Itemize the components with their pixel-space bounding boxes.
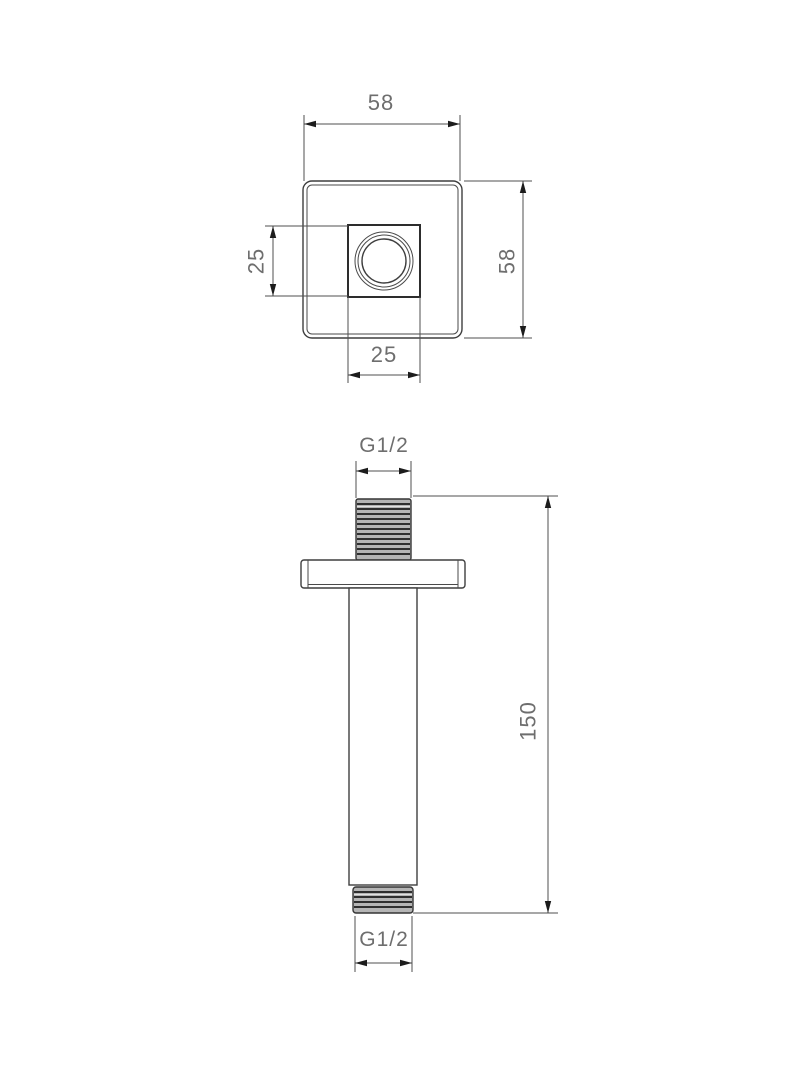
front-view: G1/2 [301,434,558,972]
thread-label-top: G1/2 [359,434,409,457]
flange-body [301,560,465,588]
dim-plate-width: 58 [304,90,460,181]
dim-plate-height: 58 [464,181,532,338]
thread-hole-minor-circle [362,239,406,283]
plate-inner-edge [307,185,458,334]
dim-thread-top: G1/2 [356,434,411,498]
arm-tube [349,588,417,885]
dim-label-arm-length: 150 [516,701,541,741]
dim-thread-bottom: G1/2 [355,916,412,972]
arrowhead-right [399,468,411,474]
dim-label-plate-height: 58 [495,248,520,274]
boss-and-thread-hole [348,225,420,297]
ceiling-plate-outline [303,181,462,338]
arrowhead-up [270,226,276,238]
arrowhead-right [400,960,412,966]
top-view: 58 58 [244,90,532,383]
arrowhead-down [520,326,526,338]
dim-boss-width: 25 [348,297,420,383]
dim-arm-length: 150 [413,496,558,913]
arrowhead-down [270,284,276,296]
boss-square [348,225,420,297]
arrowhead-left [356,468,368,474]
arrowhead-left [355,960,367,966]
thread-label-bottom: G1/2 [359,928,409,951]
ceiling-flange [301,560,465,588]
arrowhead-up [545,496,551,508]
technical-drawing-canvas: 58 58 [0,0,800,1091]
thread-bottom-body [353,887,413,913]
dim-label-boss-width: 25 [371,342,397,367]
drawing-sheet: 58 58 [0,0,800,1091]
arrowhead-up [520,181,526,193]
thread-bottom [353,887,413,913]
dim-label-boss-height: 25 [244,248,269,274]
arrowhead-down [545,901,551,913]
arrowhead-left [348,372,360,378]
arrowhead-right [408,372,420,378]
arrowhead-left [304,121,316,127]
thread-top [356,499,411,560]
thread-hole-crest-circle [358,235,410,287]
dim-label-plate-width: 58 [368,90,394,115]
plate-outer-edge [303,181,462,338]
thread-hole-major-circle [355,232,413,290]
dim-boss-height: 25 [244,226,348,296]
arrowhead-right [448,121,460,127]
